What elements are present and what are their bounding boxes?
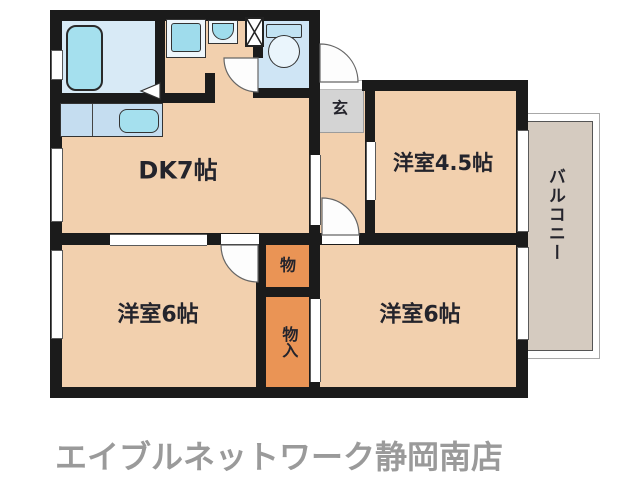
label-balcony: バルコニー [545, 168, 563, 263]
label-room-6-right: 洋室6帖 [379, 303, 460, 326]
label-entrance: 玄 [332, 101, 348, 118]
label-dk: DK7帖 [138, 158, 217, 183]
label-room-45: 洋室4.5帖 [393, 152, 493, 174]
label-storage: 物 [280, 258, 296, 275]
label-closet: 物入 [280, 326, 297, 358]
label-room-6-left: 洋室6帖 [117, 303, 198, 326]
store-name-text: エイブルネットワーク静岡南店 [55, 432, 503, 478]
floorplan: DK7帖 洋室4.5帖 洋室6帖 洋室6帖 玄 物 物入 バルコニー エイブルネ… [0, 0, 640, 480]
door-swing-arcs [0, 0, 640, 480]
